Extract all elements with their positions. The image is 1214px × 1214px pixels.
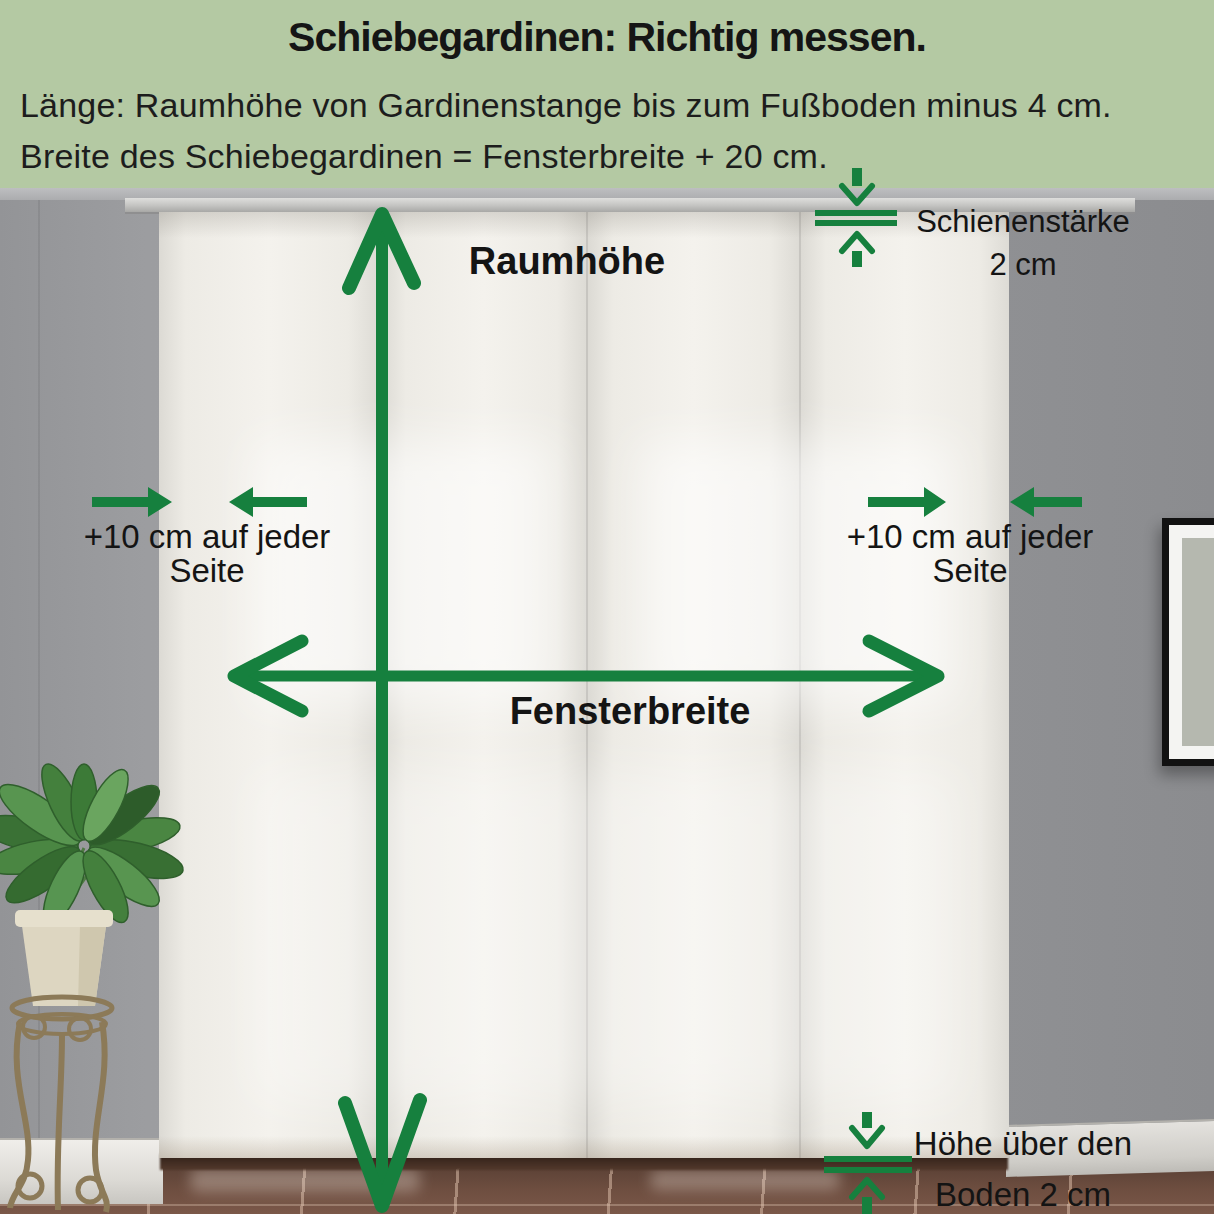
picture-frame bbox=[1162, 518, 1214, 766]
extra-width-left-line1: +10 cm auf jeder bbox=[84, 518, 331, 555]
extra-width-right-line2: Seite bbox=[932, 552, 1007, 589]
floor-clearance-label: Höhe über den Boden 2 cm bbox=[893, 1118, 1153, 1214]
floor-clearance-line2: Boden 2 cm bbox=[935, 1176, 1111, 1213]
instruction-width: Breite des Schiebegardinen = Fensterbrei… bbox=[20, 137, 828, 176]
plant-pot bbox=[15, 910, 113, 1006]
header: Schiebegardinen: Richtig messen. Länge: … bbox=[0, 0, 1214, 188]
window-light-glow bbox=[255, 772, 955, 1102]
rail-thickness-line2: 2 cm bbox=[989, 247, 1056, 282]
floor-clearance-line1: Höhe über den bbox=[914, 1125, 1132, 1162]
extra-width-left-label: +10 cm auf jeder Seite bbox=[77, 520, 337, 588]
extra-width-right-line1: +10 cm auf jeder bbox=[847, 518, 1094, 555]
sliding-curtain-panels bbox=[159, 212, 1009, 1158]
rail-thickness-label: Schienenstärke 2 cm bbox=[898, 200, 1148, 286]
instruction-length: Länge: Raumhöhe von Gardinenstange bis z… bbox=[20, 86, 1112, 125]
plant-leaves bbox=[0, 759, 187, 930]
frame-artwork bbox=[1182, 538, 1214, 746]
floor-reflection bbox=[650, 1170, 840, 1190]
floor-reflection bbox=[190, 1168, 420, 1192]
room-height-label: Raumhöhe bbox=[437, 240, 697, 283]
measuring-infographic: Schiebegardinen: Richtig messen. Länge: … bbox=[0, 0, 1214, 1214]
extra-width-left-line2: Seite bbox=[169, 552, 244, 589]
potted-plant bbox=[0, 740, 205, 1214]
extra-width-right-label: +10 cm auf jeder Seite bbox=[840, 520, 1100, 588]
page-title: Schiebegardinen: Richtig messen. bbox=[0, 14, 1214, 61]
rail-thickness-line1: Schienenstärke bbox=[916, 204, 1130, 239]
window-width-label: Fensterbreite bbox=[450, 690, 810, 733]
plant-stand bbox=[10, 997, 112, 1212]
